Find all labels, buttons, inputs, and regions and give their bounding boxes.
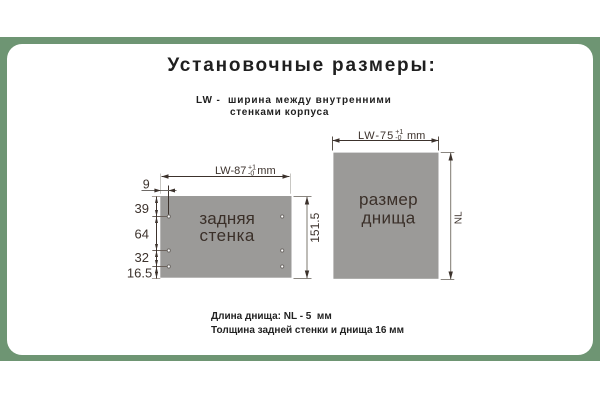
- svg-text:LW-87: LW-87: [215, 165, 246, 177]
- svg-text:9: 9: [143, 178, 150, 192]
- svg-text:39: 39: [135, 201, 149, 216]
- svg-text:LW-75: LW-75: [358, 130, 394, 142]
- svg-text:151.5: 151.5: [308, 212, 322, 242]
- svg-text:днища: днища: [362, 208, 416, 227]
- svg-text:64: 64: [135, 227, 149, 242]
- svg-text:mm: mm: [257, 165, 275, 177]
- svg-text:NL: NL: [453, 211, 464, 224]
- svg-text:32: 32: [135, 250, 149, 265]
- svg-text:размер: размер: [359, 190, 418, 209]
- svg-text:-0: -0: [248, 170, 254, 177]
- svg-text:стенка: стенка: [199, 226, 255, 245]
- svg-text:16.5: 16.5: [127, 265, 152, 280]
- svg-text:mm: mm: [407, 130, 425, 142]
- svg-text:-0: -0: [395, 135, 401, 142]
